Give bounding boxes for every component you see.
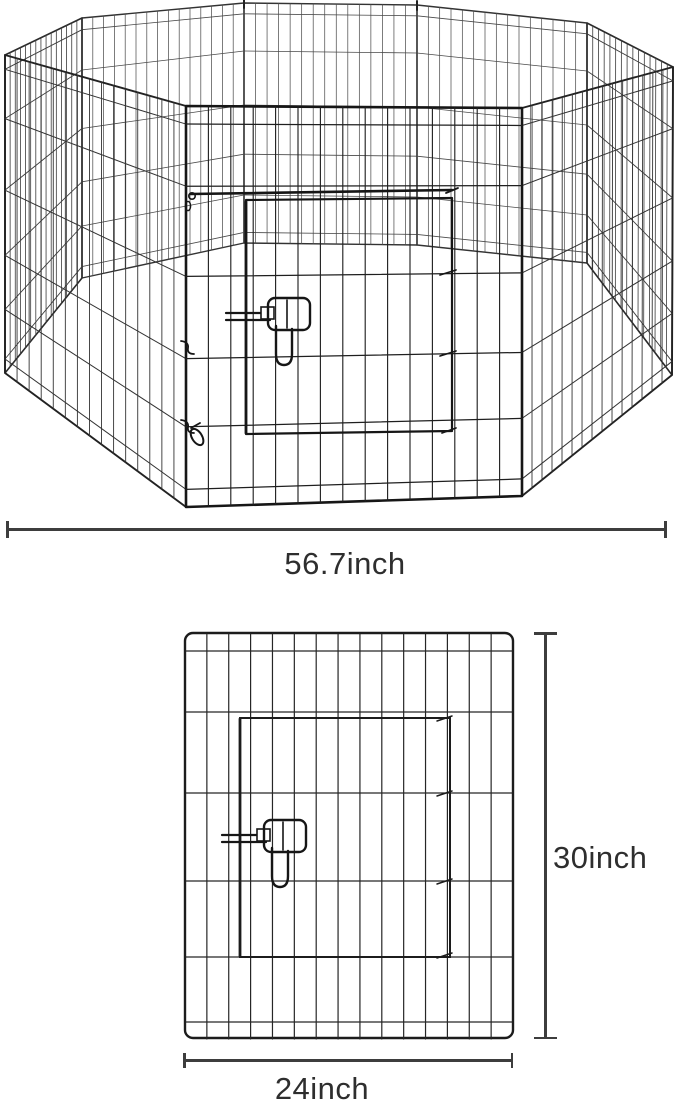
dimension-line-overall-width (7, 528, 666, 531)
dimension-cap-right (511, 1053, 514, 1068)
dimension-line-panel-height (544, 632, 547, 1039)
dimension-cap-top (534, 632, 557, 635)
dimension-label-panel-width: 24inch (122, 1071, 522, 1107)
product-image: 56.7inch 30inch 24inch (0, 0, 679, 1107)
dimension-cap-right (664, 521, 667, 538)
dimension-line-panel-width (183, 1059, 513, 1062)
dimension-cap-left (6, 521, 9, 538)
playpen-assembled-view (5, 0, 673, 507)
dimension-cap-bottom (534, 1037, 557, 1040)
dimension-label-overall-width: 56.7inch (145, 546, 545, 582)
single-panel-view (185, 633, 513, 1039)
dimension-label-panel-height: 30inch (553, 840, 647, 876)
dimension-cap-left (183, 1053, 186, 1068)
